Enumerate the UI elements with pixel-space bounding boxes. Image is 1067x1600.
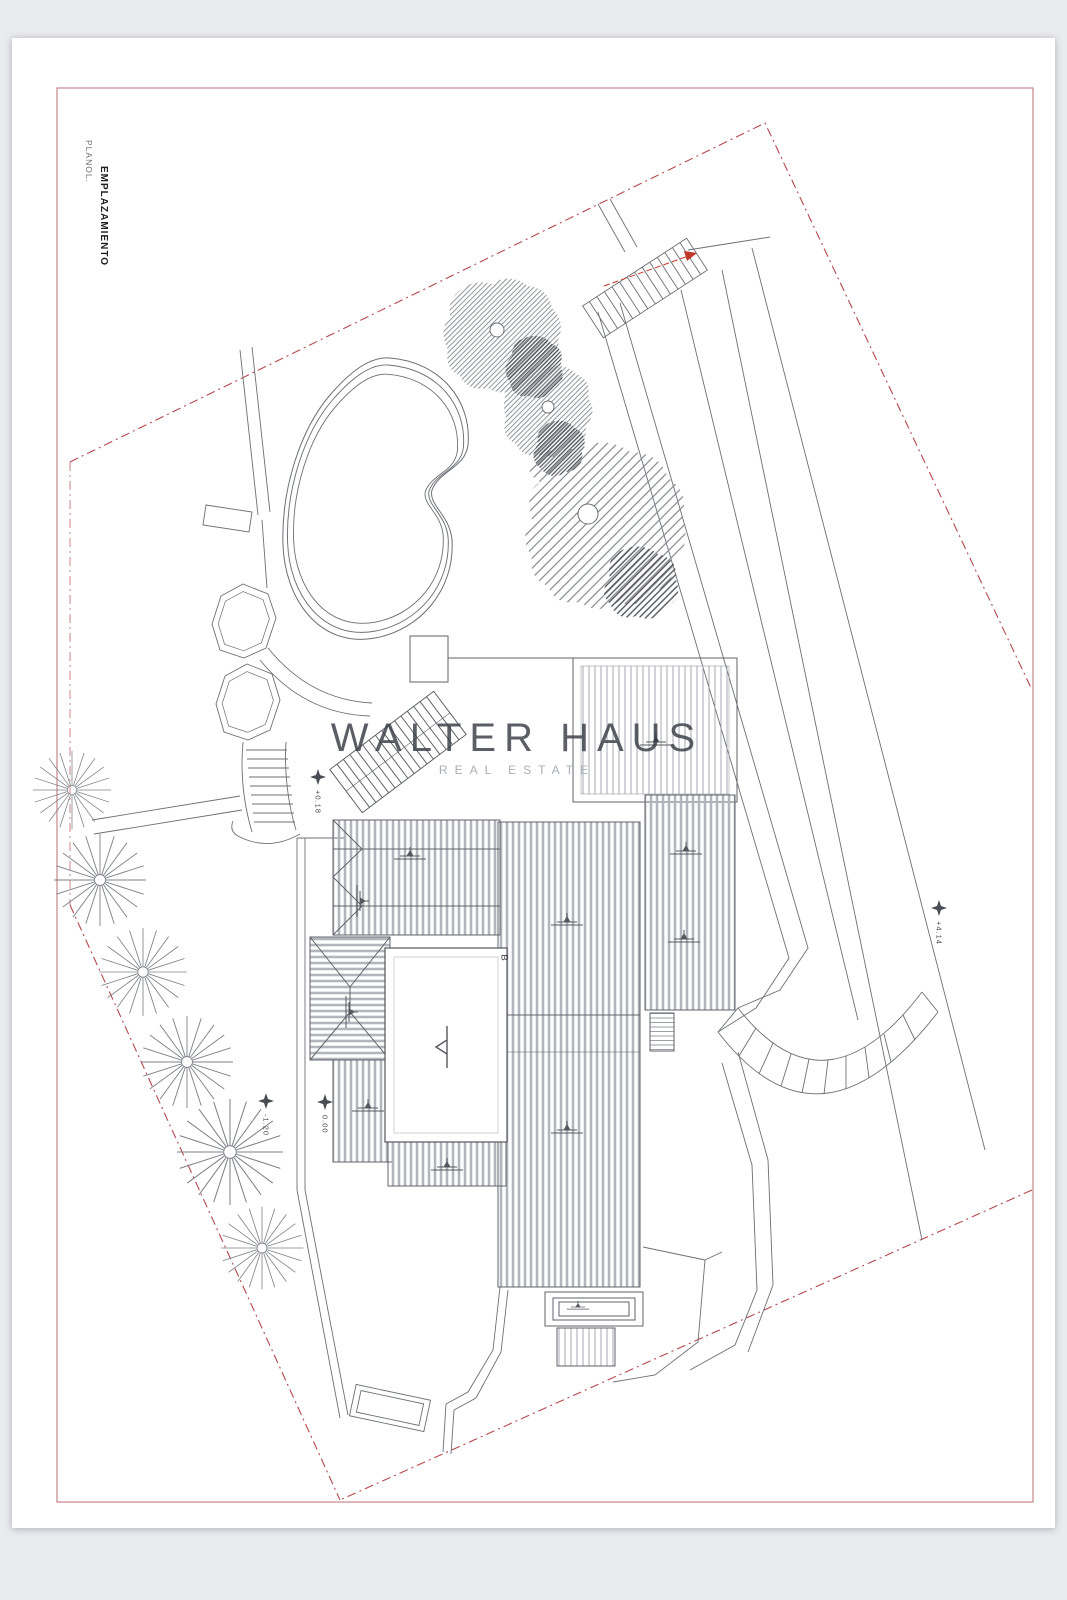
elevation-value: -1.20 — [262, 1114, 271, 1136]
section-label: B — [499, 954, 510, 960]
plan-label: PLANOL. — [84, 140, 94, 252]
site-plan-drawing — [0, 0, 1067, 1600]
elevation-value: 0.00 — [321, 1115, 330, 1134]
flat-terrace — [385, 948, 507, 1142]
left-gable-roof — [333, 820, 500, 935]
garden-stair — [232, 742, 300, 844]
pool — [283, 358, 468, 639]
plan-title: EMPLAZAMIENTO — [98, 166, 109, 266]
building-roofs — [310, 636, 737, 1366]
benchmark-icon — [317, 1094, 333, 1110]
palm-trees — [33, 751, 304, 1290]
main-roof — [498, 822, 640, 1287]
elevation-value: +0.18 — [314, 790, 323, 814]
planter — [216, 664, 280, 740]
title-block: PLANOL. EMPLAZAMIENTO — [84, 140, 109, 266]
curved-stair — [718, 992, 938, 1094]
elevation-value: +4.14 — [935, 921, 944, 945]
benchmark-icon — [931, 900, 947, 916]
entry-stair — [330, 691, 466, 812]
benchmark-icon — [258, 1093, 274, 1109]
planter — [212, 584, 276, 658]
tree-canopies — [443, 278, 685, 618]
right-wing-roof — [645, 795, 735, 1010]
elevation-marker: +0.18 — [309, 769, 327, 814]
benchmark-icon — [310, 769, 326, 785]
elevation-marker: 0.00 — [316, 1094, 334, 1134]
elevation-marker: +4.14 — [930, 900, 948, 945]
elevation-marker: -1.20 — [257, 1093, 275, 1136]
lower-stair — [557, 1328, 615, 1366]
